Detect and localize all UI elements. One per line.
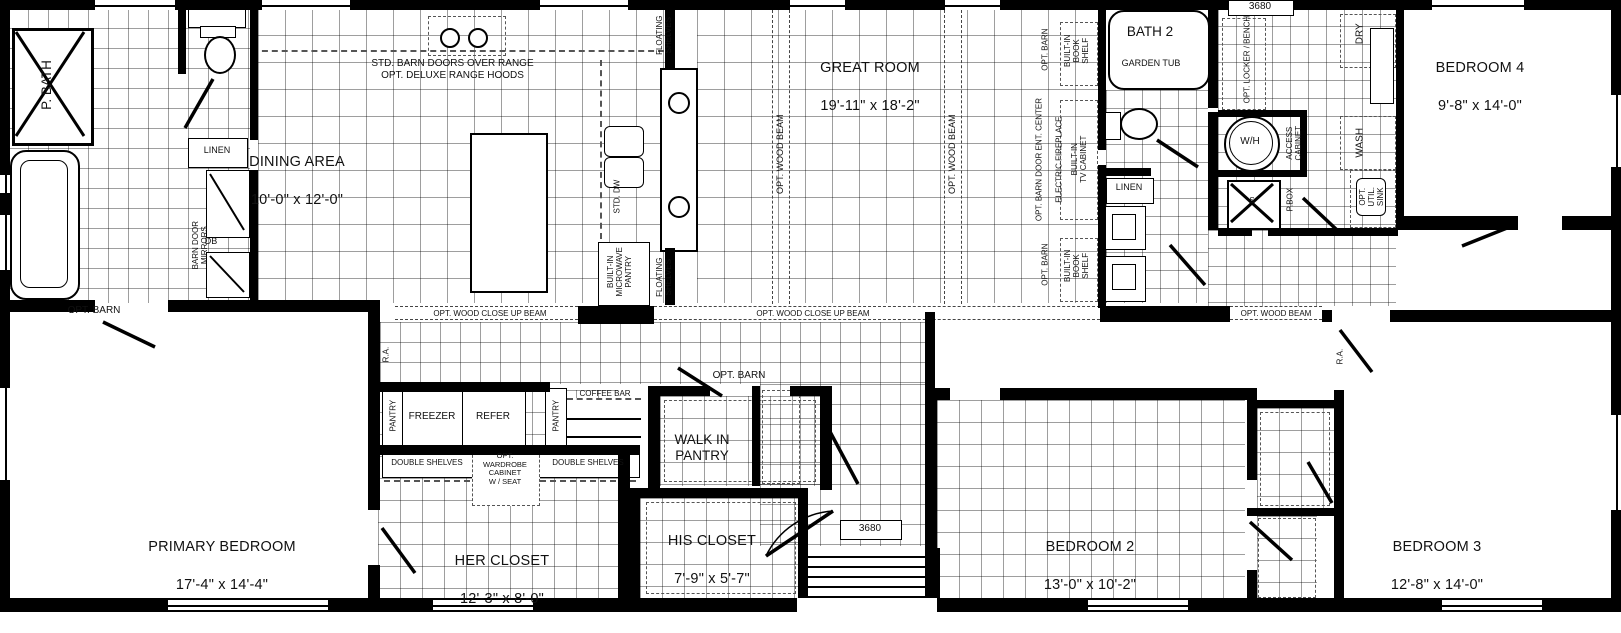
window [945,0,1000,10]
opt-wood-beam-label: OPT. WOOD BEAM [775,99,785,209]
db-label: DB [196,236,226,246]
wall [1208,8,1218,108]
opt-util-sink-label: OPT. UTIL. SINK [1358,174,1386,220]
room-name: HIS CLOSET [622,532,802,551]
wall [820,390,832,490]
room-label-bedroom4: BEDROOM 4 9'-8" x 14'-0" [1380,40,1580,134]
garden-tub [1108,10,1210,90]
room-dims: 19'-11" x 18'-2" [770,97,970,116]
door-swing [1340,330,1372,372]
wall [368,312,380,510]
coat-closet-shelves [762,390,800,484]
room-name: DINING AREA [212,153,382,172]
wall [925,400,937,600]
wall [250,8,258,140]
room-label-p-bath: P. BATH [39,30,59,140]
wall [1390,310,1621,322]
opt-barn-label: OPT. BARN [55,305,133,317]
opt-wood-close-up-beam-label: OPT. WOOD CLOSE UP BEAM [405,309,575,318]
built-in-book-shelf-label: BUILT-IN BOOK SHELF [1063,23,1091,79]
wall [925,388,950,400]
rear-door-opening [797,598,937,612]
vanity-basin [1112,214,1136,240]
wall [1208,112,1218,230]
wall [1218,228,1252,236]
room-dims: 10'-0" x 12'-0" [212,191,382,210]
room-name: PRIMARY BEDROOM [102,538,342,557]
double-shelves-label: DOUBLE SHELVES [540,458,636,467]
garden-tub-label: GARDEN TUB [1106,58,1196,68]
wall [368,565,380,600]
opt-barn-door-ent-center-label: OPT. BARN DOOR ENT. CENTER [1034,92,1043,228]
ra-label: R.A. [381,335,390,375]
wall [630,488,808,498]
dry-label: DRY [1354,14,1366,54]
freezer-label: FREEZER [402,388,462,446]
window [540,0,628,10]
room-label-walk-in-pantry: WALK IN PANTRY [642,432,762,463]
wall [1000,388,1257,400]
room-name: BEDROOM 3 [1337,538,1537,557]
ra-label: R.A. [1335,337,1344,377]
window [0,175,10,193]
window [790,0,845,10]
right-hall-floor [1208,230,1396,306]
window [1611,95,1621,167]
room-name: BEDROOM 2 [990,538,1190,557]
kitchen-island [470,133,548,293]
room-dims: 13'-0" x 10'-2" [990,576,1190,595]
refer-label: REFER [462,388,524,446]
range-burner [468,28,488,48]
floor-plan: P. BATH DINING AREA 10'-0" x 12'-0" GREA… [0,0,1621,633]
room-name: GREAT ROOM [770,59,970,78]
mirror-cabinet [206,252,250,298]
opt-barn-label: OPT. BARN [1040,22,1049,78]
door-3680-label: 3680 [840,523,900,535]
wall [178,8,186,74]
wall-right [1611,0,1621,612]
center-hall-floor [380,322,925,384]
wall [1562,216,1621,230]
wall [1322,310,1332,322]
window [1432,0,1524,10]
room-dims: 12'-3" x 8'-0" [402,590,602,609]
opt-barn-label: OPT. BARN [1040,237,1049,293]
built-in-book-shelf-label: BUILT-IN BOOK SHELF [1063,238,1091,294]
room-label-her-closet: HER CLOSET 12'-3" x 8'-0" [402,533,602,627]
pantry-label: PANTRY [388,387,397,445]
room-label-bedroom2: BEDROOM 2 13'-0" x 10'-2" [990,519,1190,613]
kitchen-sink [604,126,644,157]
wall [1100,306,1230,322]
room-label-primary: PRIMARY BEDROOM 17'-4" x 14'-4" [102,519,342,613]
range-burner [440,28,460,48]
range-note: STD. BARN DOORS OVER RANGE OPT. DELUXE R… [330,58,575,81]
wall [1098,165,1106,308]
room-label-his-closet: HIS CLOSET 7'-9" x 5'-7" [622,513,802,607]
coffee-bar-counter [567,398,641,450]
toilet-bowl [204,36,236,74]
pantry-label: PANTRY [551,387,560,445]
room-label-bath2: BATH 2 [1106,24,1194,40]
window [1611,415,1621,510]
toilet-bowl [1120,108,1158,140]
room-label-bedroom3: BEDROOM 3 12'-8" x 14'-0" [1337,519,1537,613]
shelf-line [384,480,470,482]
pendant-light [668,92,690,114]
vanity-basin [1112,264,1136,290]
s-label: S [1240,196,1264,205]
std-dw-label: STD. DW [612,172,621,222]
electric-fireplace-label: ELECTRIC FIREPLACE [1054,110,1063,210]
opt-wood-beam-label: OPT. WOOD BEAM [947,99,957,209]
wall [1247,400,1337,408]
opt-barn-label: OPT. BARN [700,370,778,382]
wall [1098,8,1106,150]
room-dims: 12'-8" x 14'-0" [1337,576,1537,595]
opt-wardrobe-label: OPT. WARDROBE CABINET W / SEAT [472,452,538,487]
wall [925,312,935,400]
built-in-microwave-pantry-label: BUILT-IN MICROWAVE PANTRY [606,241,634,303]
coffee-bar-label: COFFEE BAR [568,389,642,398]
wall [578,306,654,324]
built-in-tv-cabinet-label: BUILT-IN TV CABINET [1070,123,1088,195]
room-label-great-room: GREAT ROOM 19'-11" x 18'-2" [770,40,970,134]
access-cabinet-label: ACCESS CABINET [1285,114,1303,172]
wh-label: W/H [1224,116,1276,168]
kitchen-sink [604,157,644,188]
wall [168,300,380,312]
floating-shelves-label: FLOATING SHELVES [655,241,673,313]
room-dims: 17'-4" x 14'-4" [102,576,342,595]
opt-wood-beam-label: OPT. WOOD BEAM [1230,309,1322,318]
primary-tub-inner [20,160,68,288]
opt-wood-close-up-beam-label: OPT. WOOD CLOSE UP BEAM [728,309,898,318]
door-3680-label: 3680 [1228,1,1292,13]
wall [1247,400,1257,480]
p-box-label: P.BOX [1285,178,1294,222]
closet-shelves [1258,518,1316,598]
window [0,388,10,480]
room-name: HER CLOSET [402,552,602,571]
linen-label: LINEN [1108,182,1150,192]
room-dims: 7'-9" x 5'-7" [622,570,802,589]
vanity [188,8,246,28]
room-name: BEDROOM 4 [1380,59,1580,78]
wall [1268,228,1398,236]
window [95,0,175,10]
linen-label: LINEN [190,145,244,155]
closet-shelves [1260,412,1330,506]
wall [1396,216,1518,230]
window [262,0,350,10]
room-dims: 9'-8" x 14'-0" [1380,97,1580,116]
wash-label: WASH [1354,118,1366,168]
wall [1103,168,1151,176]
counter-edge [252,50,664,52]
door-swing [103,322,155,347]
pendant-light [668,196,690,218]
opt-locker-bench-label: OPT. LOCKER / BENCH [1242,13,1251,107]
wall [1247,570,1257,600]
double-shelves-label: DOUBLE SHELVES [384,458,470,467]
window [0,215,10,270]
toilet-tank [1105,112,1121,140]
floating-shelves-label: FLOATING SHELVES [655,0,673,71]
wall [1247,508,1337,516]
